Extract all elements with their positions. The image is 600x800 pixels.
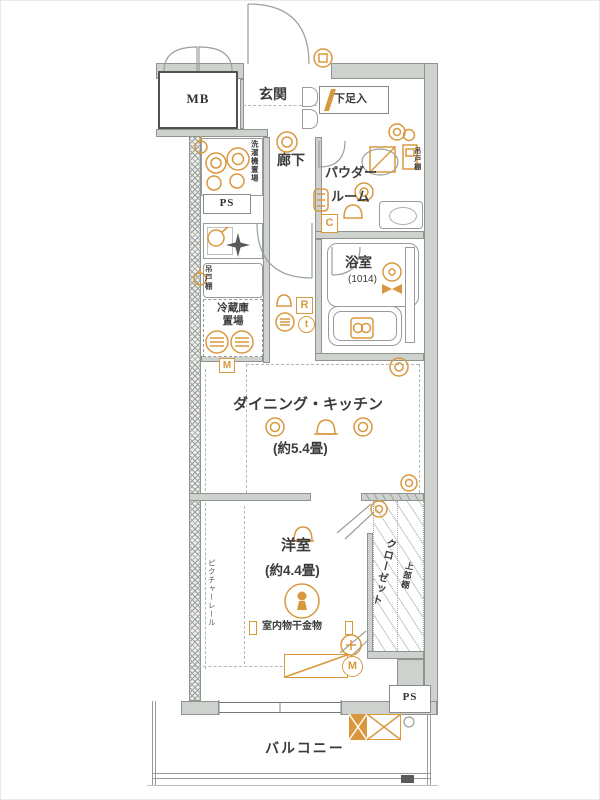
- symbol-m-box: M: [219, 358, 235, 373]
- dk-dashed-v2: [419, 364, 420, 493]
- genkan-label: 玄関: [259, 87, 287, 102]
- rail-dashed-bedroom: [205, 503, 206, 669]
- dk-dashed-v1: [246, 364, 247, 493]
- powder-door-swing: [319, 141, 345, 167]
- balcony-drain-icon: [404, 717, 414, 727]
- bedroom-size-label: (約4.4畳): [265, 564, 320, 579]
- fridge-label-1: 冷蔵庫: [207, 303, 259, 315]
- bath-counter: [405, 247, 415, 343]
- wall-dk-bedroom-right: [361, 493, 424, 501]
- hanging-cabinet-kitchen-label: 吊戸棚: [204, 265, 212, 297]
- picture-rail-label: ピクチャーレール: [207, 559, 215, 651]
- wall-under-mb: [156, 129, 268, 137]
- closet-divider-dotted: [397, 501, 398, 651]
- washer-label: 洗濯機置場: [250, 140, 258, 196]
- balcony-rail: [153, 773, 430, 779]
- ps-top-label: PS: [203, 197, 251, 209]
- dining-kitchen-size-label: (約5.4畳): [273, 442, 328, 457]
- water-heater-icon: [341, 635, 361, 655]
- powder-sink-icon: [344, 205, 362, 218]
- wall-kitchen-right: [263, 137, 270, 363]
- wall-bath-bottom: [315, 353, 424, 361]
- hanging-cabinet-powder-label: 吊戸棚: [413, 147, 421, 183]
- entry-door-panel-1: [302, 87, 318, 107]
- wall-genkan-left: [240, 79, 244, 129]
- kitchen-sink-inner: [207, 227, 233, 255]
- symbol-r: R: [296, 297, 313, 314]
- bedroom-ceiling-light-icon: [285, 584, 319, 618]
- bedroom-label: 洋室: [281, 538, 311, 555]
- dining-kitchen-label: ダイニング・キッチン: [233, 397, 383, 414]
- hallway-label: 廊下: [277, 153, 305, 168]
- powder-room-label-1: パウダー: [325, 166, 377, 180]
- wall-right: [424, 63, 438, 715]
- powder-room-label-2: ルーム: [331, 190, 370, 204]
- wall-closet-bottom: [367, 651, 424, 659]
- symbol-t: t: [298, 316, 315, 333]
- ps-bottom-label: PS: [389, 691, 431, 703]
- wall-top-right: [331, 63, 438, 79]
- bed-outline: [284, 654, 348, 678]
- entrance-door-swing: [248, 4, 309, 64]
- symbol-c: C: [321, 214, 338, 233]
- phone-jack-icons: [276, 295, 294, 331]
- ac-unit-box: [349, 714, 401, 740]
- bath-size-label: (1014): [348, 274, 377, 285]
- hallway-light-icon: [277, 132, 297, 152]
- bath-label: 浴室: [345, 256, 372, 271]
- shoe-cabinet-label: 下足入: [334, 93, 367, 105]
- wall-dk-bedroom-left: [189, 493, 311, 501]
- drying-bracket-left: [249, 621, 257, 635]
- intercom-icon: [314, 49, 332, 67]
- drying-bracket-right: [345, 621, 353, 635]
- dk-light-icons: [266, 418, 372, 436]
- dk-dashed-h: [246, 364, 419, 365]
- balcony-outer-line: [147, 785, 438, 786]
- symbol-m-circle: M: [342, 656, 363, 677]
- entry-door-panel-2: [302, 109, 318, 129]
- bathtub-inner: [333, 311, 397, 341]
- wall-bath-left: [315, 239, 322, 355]
- powder-washbasin-bowl: [389, 207, 417, 225]
- balcony-label: バルコニー: [265, 741, 345, 756]
- mb-label: MB: [158, 92, 238, 106]
- wall-left-hatched: [189, 131, 201, 701]
- floor-plan: C R t M M MB 玄関 下足入 廊下 パウダー ルーム 浴室 (1014…: [0, 0, 600, 800]
- rail-dashed-dk: [205, 369, 206, 491]
- bedroom-dashed-v: [244, 506, 245, 664]
- balcony-window: [219, 702, 341, 713]
- fridge-label-2: 置場: [207, 316, 259, 328]
- drying-fixture-label: 室内物干金物: [262, 621, 322, 632]
- bedroom-dashed-h: [193, 666, 283, 667]
- wall-bottom-left: [181, 701, 219, 715]
